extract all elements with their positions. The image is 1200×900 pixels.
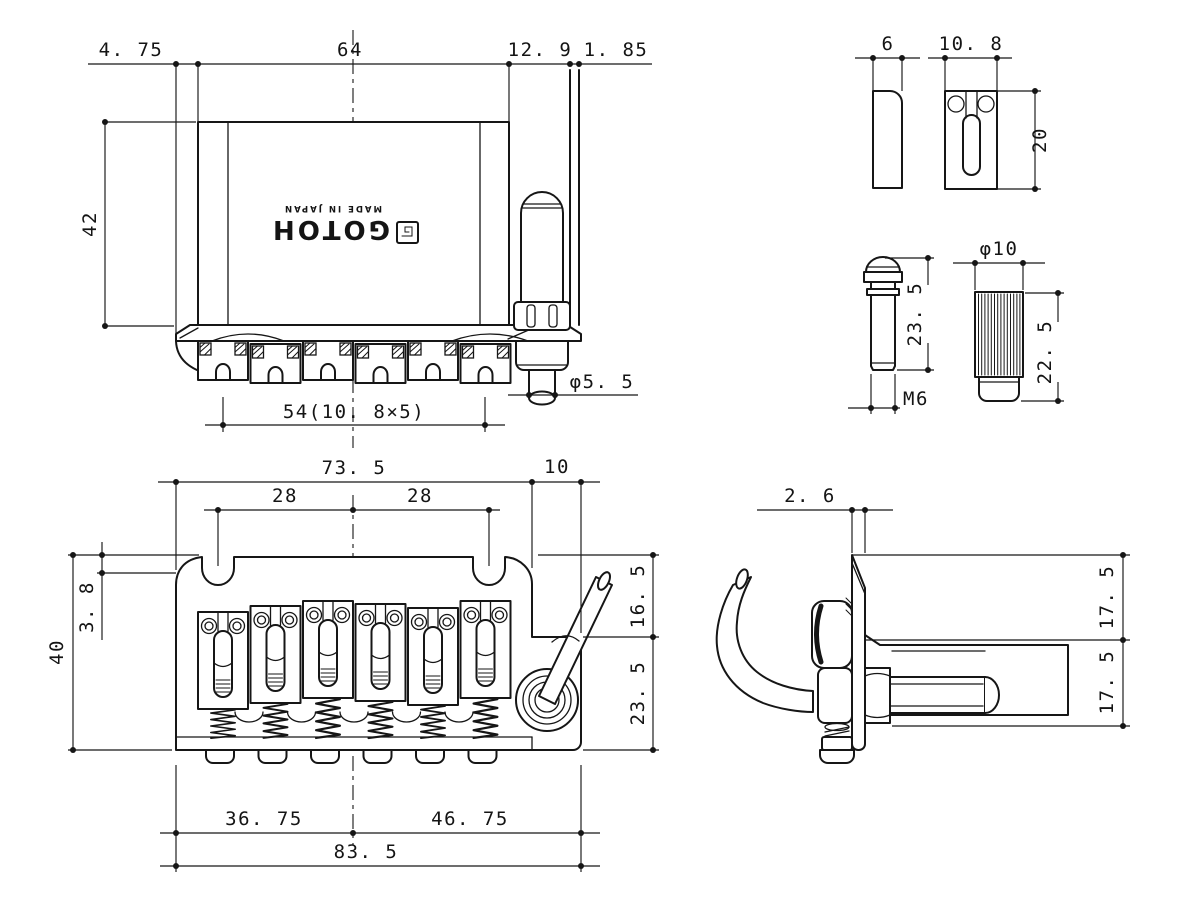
- dim-20-label: 20: [1029, 127, 1051, 153]
- arm-nut-side: [865, 668, 890, 723]
- dim-phi10-label: φ10: [980, 238, 1019, 260]
- dim-3-8-label: 3. 8: [76, 581, 98, 633]
- drawing-sheet: GOTOH MADE IN JAPAN: [0, 0, 1200, 900]
- dim-12-9-label: 12. 9: [508, 39, 573, 61]
- dim-64-label: 64: [337, 39, 363, 61]
- top-view: GOTOH MADE IN JAPAN: [79, 30, 652, 448]
- dim-10-8-label: 10. 8: [939, 33, 1004, 55]
- dim-arm-dia-label: φ5. 5: [570, 371, 635, 393]
- tremolo-arm-side: [717, 568, 813, 712]
- dim-string-spread-label: 54(10. 8×5): [283, 401, 425, 423]
- arm-hex-nut: [514, 302, 570, 330]
- dim-6-label: 6: [882, 33, 895, 55]
- saddles-plan: [198, 341, 511, 383]
- made-in-label: MADE IN JAPAN: [283, 203, 382, 213]
- dim-28-right-label: 28: [407, 485, 433, 507]
- dim-10-label: 10: [544, 456, 570, 478]
- arm-holder-block: [812, 598, 852, 723]
- arm-tip-side: [734, 568, 750, 590]
- technical-drawing: GOTOH MADE IN JAPAN: [0, 0, 1200, 900]
- string-ferrules: [206, 750, 497, 763]
- dim-23-5-front-label: 23. 5: [627, 661, 649, 726]
- dim-46-75-label: 46. 75: [431, 808, 509, 830]
- dim-23-5-stud-label: 23. 5: [904, 282, 926, 347]
- dim-40-label: 40: [46, 639, 68, 665]
- dim-42-label: 42: [79, 211, 101, 237]
- dim-m6-label: M6: [903, 388, 929, 410]
- dim-2-6-label: 2. 6: [784, 485, 836, 507]
- dim-22-5-label: 22. 5: [1034, 320, 1056, 385]
- dim-83-5-label: 83. 5: [334, 841, 399, 863]
- tremolo-arm-plan: [514, 192, 570, 405]
- side-view: 2. 6 17. 5 17. 5: [717, 485, 1130, 763]
- dim-4-75-label: 4. 75: [99, 39, 164, 61]
- dim-16-5-label: 16. 5: [627, 564, 649, 629]
- dim-73-5-label: 73. 5: [322, 457, 387, 479]
- plate-side: [852, 555, 865, 750]
- saddle-side-view: 6: [855, 33, 920, 188]
- stud-view: 23. 5 M6: [848, 255, 934, 414]
- dim-28-left-label: 28: [272, 485, 298, 507]
- arm-tension-screw: [820, 724, 854, 764]
- bushing-view: φ10 22. 5: [953, 238, 1064, 404]
- dim-17-5-lower-label: 17. 5: [1096, 650, 1118, 715]
- dim-36-75-label: 36. 75: [225, 808, 303, 830]
- saddle-plan-view: 10. 8 20: [928, 33, 1051, 192]
- arm-rod-end: [529, 392, 555, 405]
- dim-17-5-upper-label: 17. 5: [1096, 565, 1118, 630]
- front-view: 73. 5 10 28 28 3. 8 40 16. 5 23. 5 36. 7…: [46, 456, 659, 872]
- brand-wordmark: GOTOH: [270, 214, 390, 244]
- dim-1-85-label: 1. 85: [584, 39, 649, 61]
